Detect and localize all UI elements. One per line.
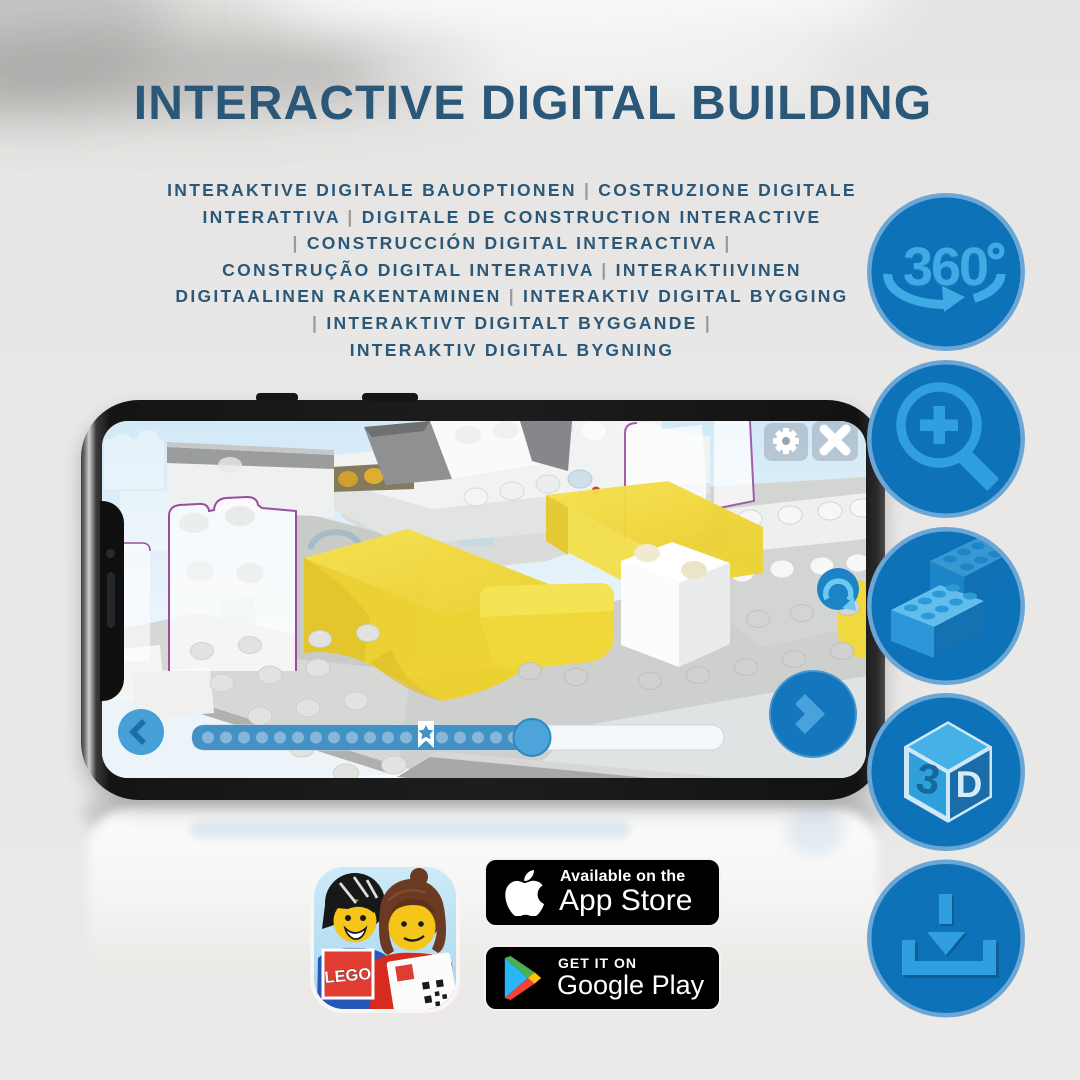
svg-text:D: D bbox=[956, 764, 983, 805]
